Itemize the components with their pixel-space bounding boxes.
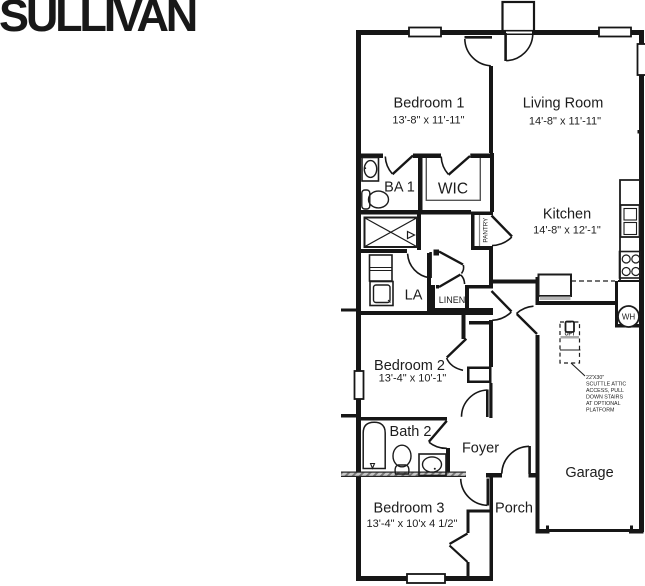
svg-text:14'-8" x 11'-11": 14'-8" x 11'-11" [529,116,601,128]
svg-text:Foyer: Foyer [462,441,499,457]
svg-text:LINEN: LINEN [439,295,466,305]
svg-text:Bath 2: Bath 2 [390,424,432,440]
svg-text:Living Room: Living Room [523,96,604,112]
svg-text:Porch: Porch [495,501,533,517]
svg-text:PANTRY: PANTRY [482,217,489,243]
svg-text:Kitchen: Kitchen [543,207,591,223]
svg-text:AT OPTIONAL: AT OPTIONAL [586,401,621,407]
svg-text:ACCESS, PULL: ACCESS, PULL [586,388,624,394]
svg-text:WIC: WIC [438,181,468,198]
svg-text:14'-8" x 12'-1": 14'-8" x 12'-1" [533,225,601,237]
svg-text:13'-4" x 10'-1": 13'-4" x 10'-1" [379,373,447,385]
svg-text:BA 1: BA 1 [384,180,415,196]
svg-text:13'-4" x 10'x 4 1/2": 13'-4" x 10'x 4 1/2" [367,518,458,530]
svg-text:DOWN STAIRS: DOWN STAIRS [586,395,623,401]
svg-text:13'-8" x 11'-11": 13'-8" x 11'-11" [392,115,464,127]
svg-text:LA: LA [405,288,423,304]
svg-text:Bedroom 3: Bedroom 3 [374,501,445,517]
svg-text:SCUTTLE ATTIC: SCUTTLE ATTIC [586,382,626,388]
svg-text:WH: WH [622,313,636,322]
svg-text:Bedroom 1: Bedroom 1 [394,96,465,112]
svg-text:22'X30": 22'X30" [586,375,604,381]
svg-text:PLATFORM: PLATFORM [586,408,614,414]
svg-text:Garage: Garage [565,465,613,481]
svg-text:OPT: OPT [565,331,575,337]
